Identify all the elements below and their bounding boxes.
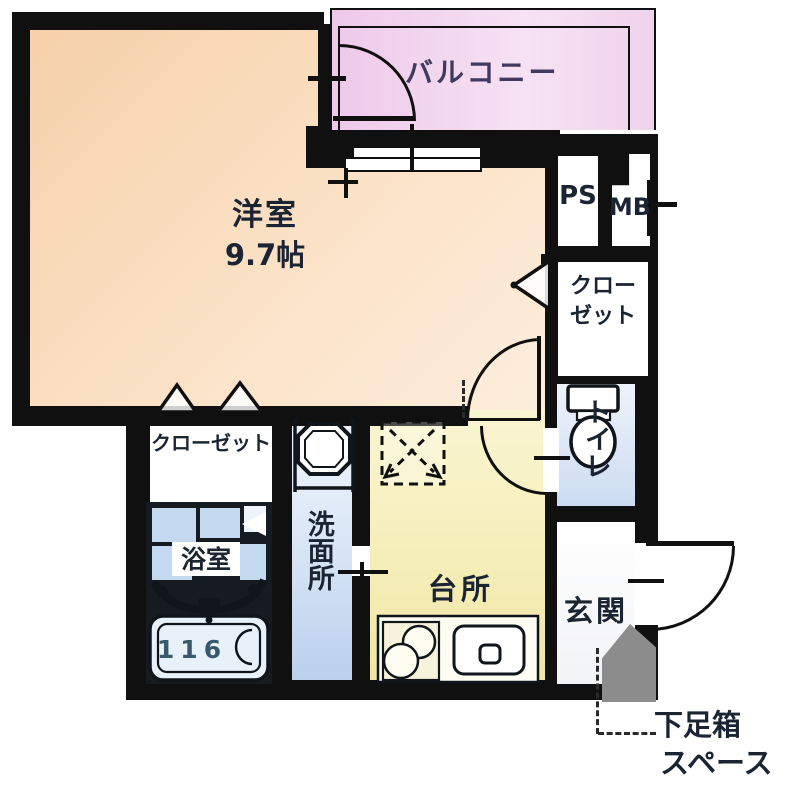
western-door-dashed-line bbox=[462, 380, 465, 418]
closet-door-pivot bbox=[541, 254, 553, 264]
kitchen-sink-icon bbox=[454, 626, 524, 674]
floor-plan: 浴室 116 洋室 9.7帖 バルコニー PS MB クロー bbox=[0, 0, 793, 800]
room-label-closet-left: クローゼット bbox=[146, 432, 276, 454]
closet-right-line2: ゼット bbox=[570, 304, 636, 329]
front-door-tick bbox=[628, 579, 664, 583]
room-label-closet-right: クロー ゼット bbox=[560, 272, 646, 331]
window-jamb-tick bbox=[410, 124, 414, 170]
western-door-threshold bbox=[468, 418, 540, 421]
stove-icon bbox=[383, 622, 439, 680]
room-label-kitchen: 台所 bbox=[416, 574, 506, 606]
room-label-washroom: 洗面所 bbox=[303, 510, 333, 620]
room-label-balcony: バルコニー bbox=[405, 58, 559, 89]
room-label-mb: MB bbox=[608, 194, 652, 220]
annotation-shoe-box-line2: スペース bbox=[660, 748, 773, 780]
window-jamb-tick bbox=[328, 180, 358, 184]
room-label-ps: PS bbox=[556, 182, 600, 211]
bathtub-icon: 浴室 116 bbox=[146, 502, 272, 684]
kitchen-counter bbox=[376, 614, 542, 684]
room-label-toilet: トイレ bbox=[580, 398, 610, 508]
bath-label: 浴室 bbox=[181, 545, 231, 574]
annotation-shoe-box-line1: 下足箱 bbox=[654, 710, 741, 742]
shoe-box-leader-line bbox=[598, 732, 656, 735]
room-label-entrance: 玄関 bbox=[556, 596, 636, 628]
wall-left bbox=[12, 12, 30, 422]
room-size-western: 9.7帖 bbox=[200, 240, 330, 272]
washroom-door-tick bbox=[360, 562, 364, 582]
room-label-western: 洋室 bbox=[200, 198, 330, 232]
closet-right-line1: クロー bbox=[570, 274, 636, 299]
shoe-box-leader-line bbox=[596, 648, 599, 734]
folding-door-icon bbox=[146, 378, 278, 414]
door-swing-arc-entrance bbox=[650, 546, 735, 631]
washbasin-icon bbox=[290, 416, 358, 510]
wall-top bbox=[12, 12, 324, 30]
bathtub-size: 116 bbox=[157, 635, 227, 664]
fridge-space-icon bbox=[378, 418, 448, 490]
